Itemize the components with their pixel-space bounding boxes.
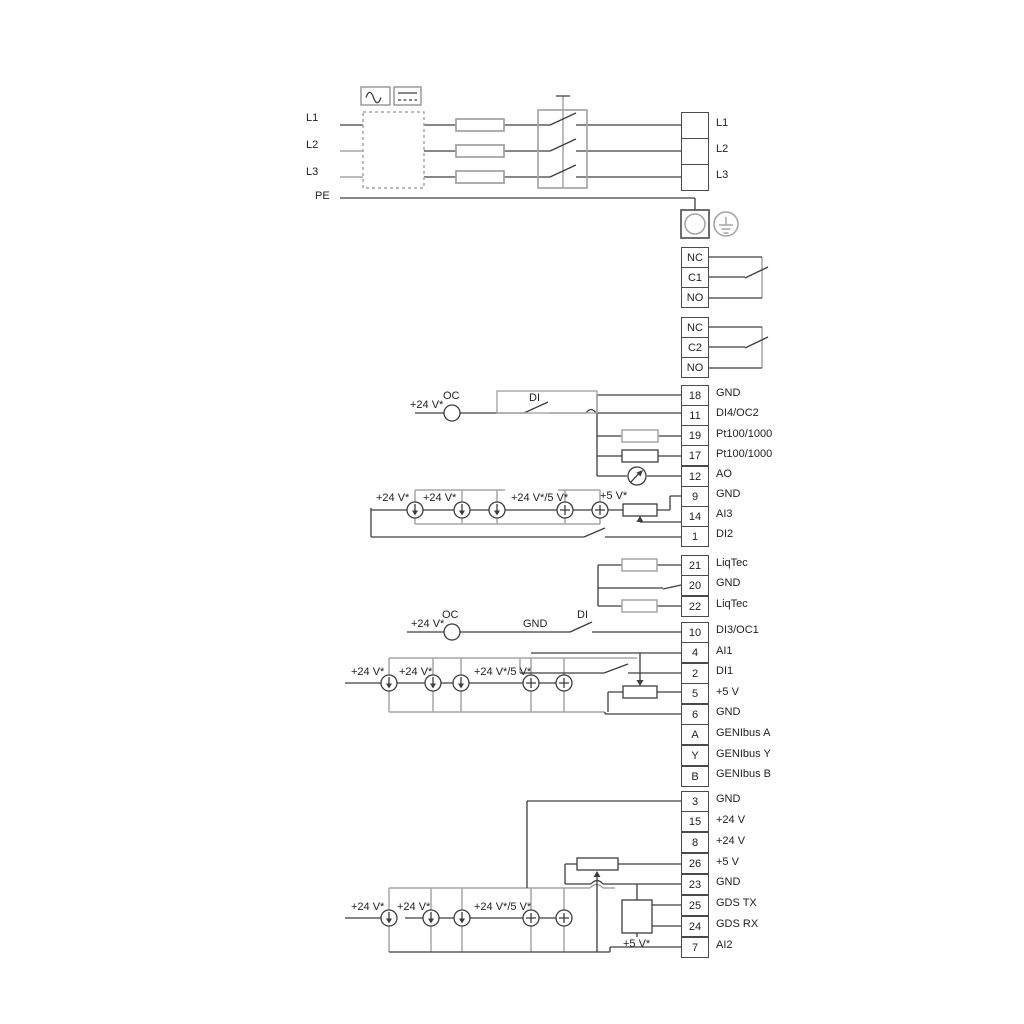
- label-gnd: GND: [523, 618, 547, 630]
- oc-circle-1: [444, 405, 460, 421]
- power-output-label-l2: L2: [716, 143, 728, 155]
- terminal-label: +5 V: [716, 686, 739, 698]
- terminal-label: LiqTec: [716, 557, 748, 569]
- pot3-wiper-arrow: [594, 871, 601, 877]
- relay1-cell-no: NO: [681, 287, 709, 308]
- label-plus24v: +24 V*: [397, 901, 430, 913]
- oc-and-meter-icons: [444, 405, 646, 640]
- liqtec-resistor-2: [622, 600, 657, 612]
- terminal-cell-22: 22: [681, 596, 709, 617]
- terminal-label: AI2: [716, 939, 733, 951]
- terminal-cell-2: 2: [681, 663, 709, 684]
- dc-symbol-box: [394, 87, 421, 105]
- terminal-label: GND: [716, 577, 740, 589]
- label-oc: OC: [442, 609, 459, 621]
- ac-dc-converter-box: [363, 112, 424, 188]
- label-di: DI: [577, 609, 588, 621]
- power-input-label-l2: L2: [306, 139, 318, 151]
- terminal-label: GENIbus Y: [716, 748, 771, 760]
- terminal-cell: [681, 164, 709, 191]
- pt100-resistor-1: [622, 430, 658, 442]
- label-plus24v: +24 V*: [351, 666, 384, 678]
- terminal-label: GND: [716, 793, 740, 805]
- terminal-label: DI3/OC1: [716, 624, 759, 636]
- terminal-cell-11: 11: [681, 405, 709, 426]
- terminal-cell-24: 24: [681, 916, 709, 937]
- terminal-cell-4: 4: [681, 642, 709, 663]
- terminal-label: DI1: [716, 665, 733, 677]
- terminal-cell-18: 18: [681, 385, 709, 406]
- terminal-cell-7: 7: [681, 937, 709, 958]
- terminal-label: +5 V: [716, 856, 739, 868]
- terminal-label: AI3: [716, 508, 733, 520]
- terminal-label: GND: [716, 387, 740, 399]
- terminal-cell-25: 25: [681, 895, 709, 916]
- label-plus24v: +24 V*: [411, 618, 444, 630]
- terminal-cell-19: 19: [681, 425, 709, 446]
- terminal-cell-12: 12: [681, 466, 709, 487]
- terminal-cell-17: 17: [681, 445, 709, 466]
- terminal-label: DI2: [716, 528, 733, 540]
- gds-sensor-box: [622, 900, 652, 933]
- pot1-wiper-arrow: [637, 516, 644, 522]
- terminal-cell-8: 8: [681, 832, 709, 853]
- terminal-cell-1: 1: [681, 526, 709, 547]
- oc-circle-2: [444, 624, 460, 640]
- terminal-cell-A: A: [681, 724, 709, 745]
- fuse-1: [456, 119, 504, 131]
- power-output-label-l3: L3: [716, 169, 728, 181]
- relay2-cell-c2: C2: [681, 337, 709, 358]
- terminal-label: LiqTec: [716, 598, 748, 610]
- terminal-cell-15: 15: [681, 811, 709, 832]
- label-plus24v: +24 V*: [399, 666, 432, 678]
- terminal-label: +24 V: [716, 835, 745, 847]
- terminal-label: GND: [716, 876, 740, 888]
- terminal-cell-21: 21: [681, 555, 709, 576]
- terminal-label: Pt100/1000: [716, 428, 772, 440]
- relay2-cell-no: NO: [681, 357, 709, 378]
- relay1-cell-nc: NC: [681, 247, 709, 268]
- terminal-label: GENIbus B: [716, 768, 771, 780]
- label-plus5v: +5 V*: [600, 490, 627, 502]
- terminal-label: GND: [716, 488, 740, 500]
- terminal-cell-9: 9: [681, 486, 709, 507]
- terminal-cell-26: 26: [681, 853, 709, 874]
- potentiometer-1: [623, 504, 657, 516]
- potentiometer-2: [623, 686, 657, 698]
- terminal-cell-14: 14: [681, 506, 709, 527]
- power-input-label-pe: PE: [315, 190, 330, 202]
- power-input-label-l3: L3: [306, 166, 318, 178]
- terminal-cell-10: 10: [681, 622, 709, 643]
- terminal-label: Pt100/1000: [716, 448, 772, 460]
- label-plus24v: +24 V*: [351, 901, 384, 913]
- arrowheads: [386, 470, 644, 924]
- relay1-cell-c1: C1: [681, 267, 709, 288]
- terminal-label: GDS TX: [716, 897, 757, 909]
- terminal-cell-B: B: [681, 766, 709, 787]
- terminal-label: GDS RX: [716, 918, 758, 930]
- pot2-wiper-arrow: [637, 680, 644, 686]
- potentiometer-3: [577, 858, 618, 870]
- terminal-cell-6: 6: [681, 704, 709, 725]
- label-plus5v: +5 V*: [623, 938, 650, 950]
- terminal-label: AI1: [716, 645, 733, 657]
- relay2-cell-nc: NC: [681, 317, 709, 338]
- fuse-2: [456, 145, 504, 157]
- label-plus24v-5v: +24 V*/5 V*: [474, 666, 531, 678]
- terminal-label: GND: [716, 706, 740, 718]
- power-output-label-l1: L1: [716, 117, 728, 129]
- terminal-cell-3: 3: [681, 791, 709, 812]
- label-di: DI: [529, 392, 540, 404]
- terminal-cell-Y: Y: [681, 745, 709, 766]
- wiring-diagram-page: L1 L2 L3 PE L1 L2 L3 NC C1 NO NC C2 NO 1…: [0, 0, 1024, 1024]
- terminal-cell-20: 20: [681, 575, 709, 596]
- terminal-label: +24 V: [716, 814, 745, 826]
- label-plus24v-5v: +24 V*/5 V*: [511, 492, 568, 504]
- terminal-cell: [681, 138, 709, 165]
- fuse-3: [456, 171, 504, 183]
- label-plus24v: +24 V*: [423, 492, 456, 504]
- terminal-label: GENIbus A: [716, 727, 770, 739]
- wiring-diagram: [0, 0, 1024, 1024]
- label-oc: OC: [443, 390, 460, 402]
- terminal-label: DI4/OC2: [716, 407, 759, 419]
- pt100-resistor-2: [622, 450, 658, 462]
- current-source-circles: [381, 502, 608, 926]
- label-plus24v-5v: +24 V*/5 V*: [474, 901, 531, 913]
- terminal-label: AO: [716, 468, 732, 480]
- liqtec-resistor-1: [622, 559, 657, 571]
- label-plus24v: +24 V*: [410, 399, 443, 411]
- label-plus24v: +24 V*: [376, 492, 409, 504]
- terminal-cell-5: 5: [681, 683, 709, 704]
- power-input-label-l1: L1: [306, 112, 318, 124]
- terminal-cell: [681, 112, 709, 139]
- terminal-cell-23: 23: [681, 874, 709, 895]
